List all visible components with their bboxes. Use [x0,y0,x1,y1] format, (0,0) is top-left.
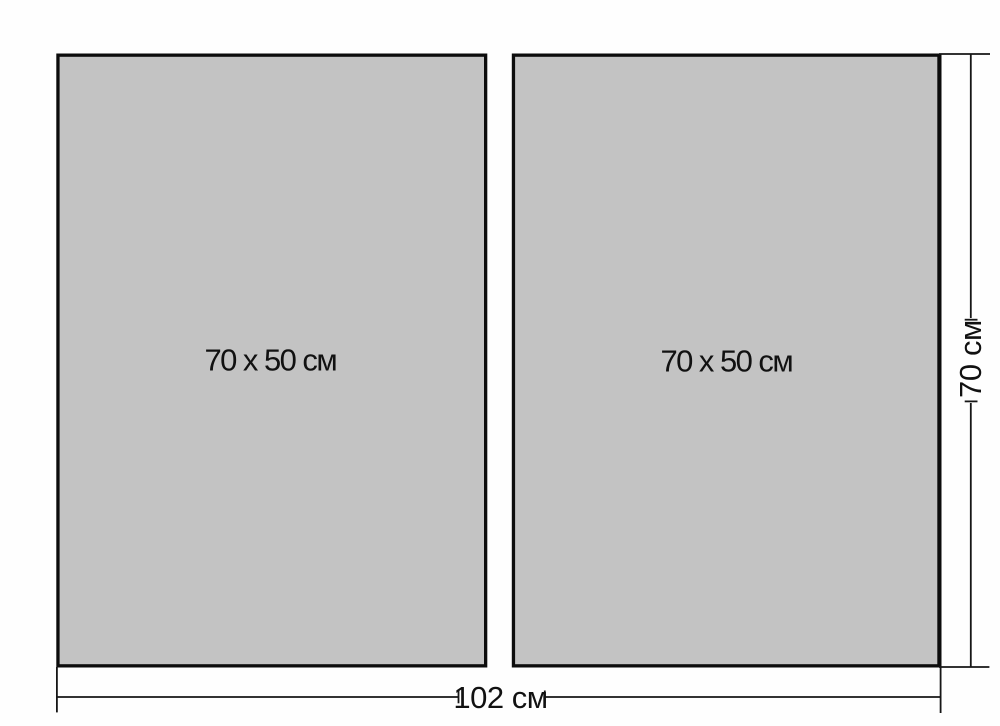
svg-text:70 x 50 см: 70 x 50 см [204,343,336,378]
svg-text:102 см: 102 см [453,680,547,715]
svg-text:70 см: 70 см [953,320,988,398]
svg-text:70 x 50 см: 70 x 50 см [660,344,792,379]
